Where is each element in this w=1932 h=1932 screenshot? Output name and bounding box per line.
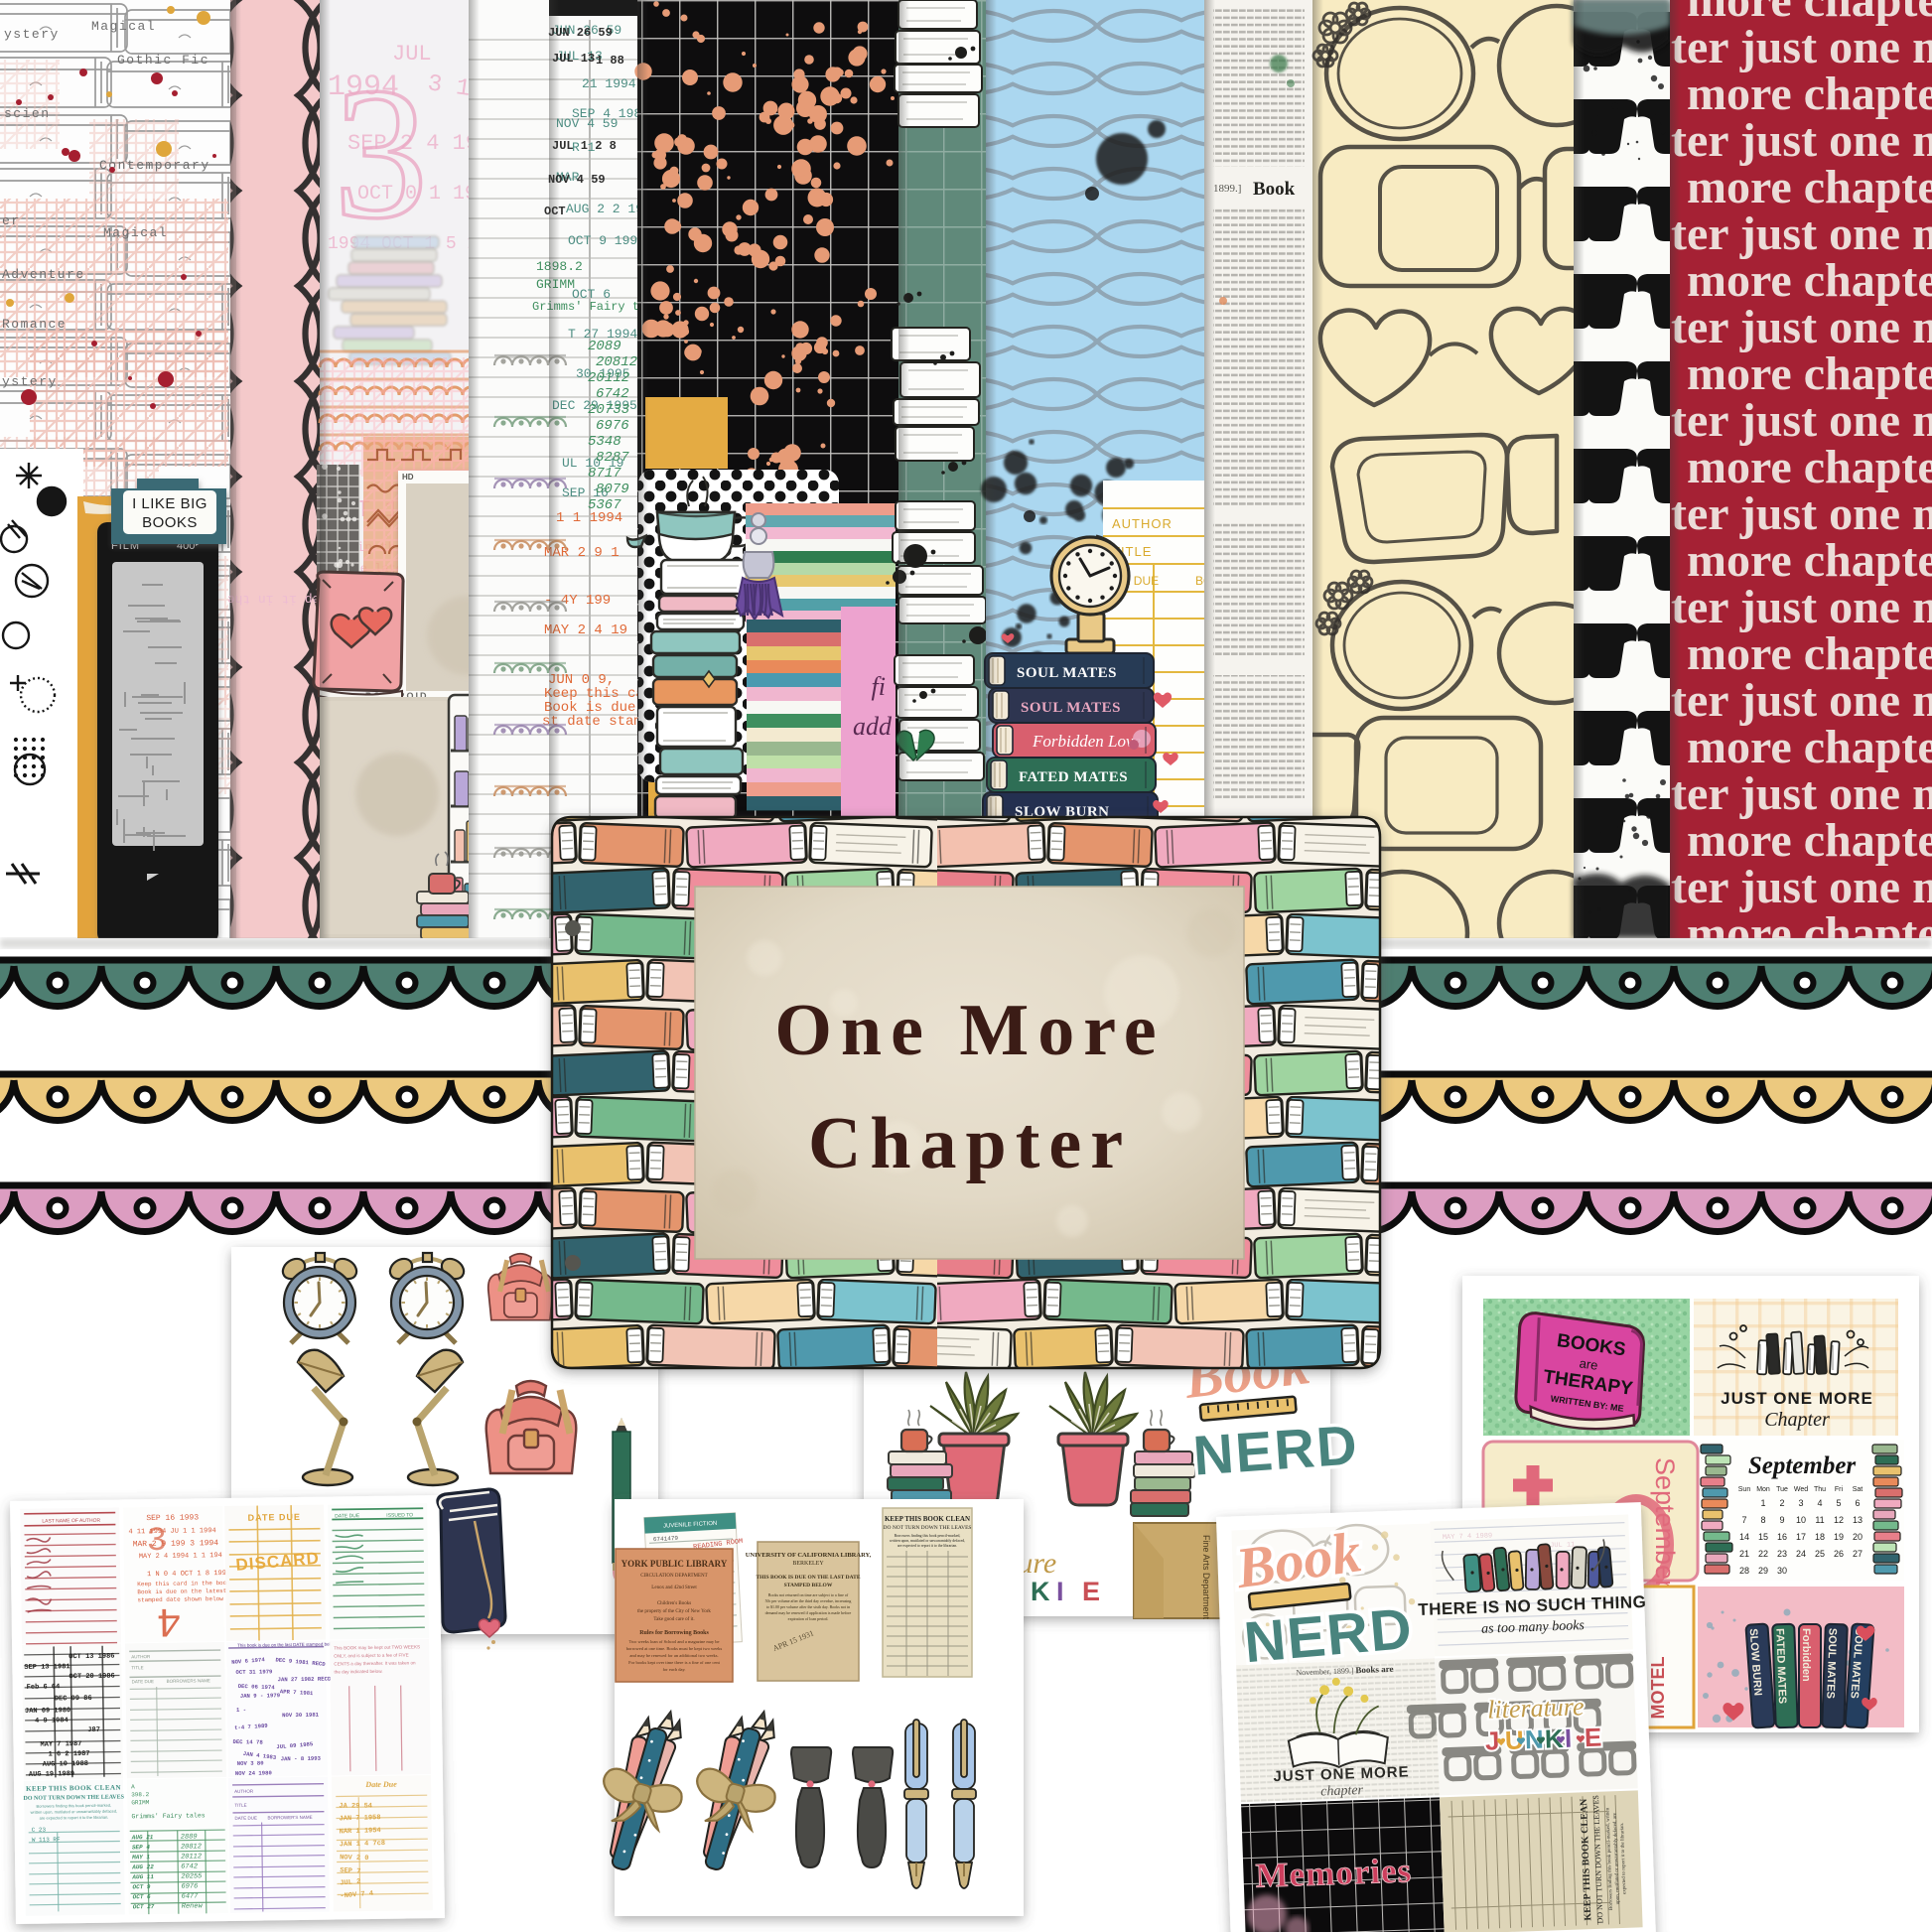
- svg-text:1: 1: [1760, 1498, 1765, 1508]
- svg-text:Forbidden: Forbidden: [1800, 1628, 1812, 1682]
- svg-text:30: 30: [1777, 1566, 1787, 1576]
- svg-text:4 11 1994 JU 1 1 1994: 4 11 1994 JU 1 1 1994: [128, 1527, 215, 1536]
- svg-text:1 1 1994: 1 1 1994: [556, 510, 622, 526]
- svg-text:A: A: [131, 1783, 135, 1790]
- svg-text:5: 5: [1836, 1498, 1841, 1508]
- svg-text:OCT 27: OCT 27: [133, 1903, 155, 1910]
- svg-text:NOV 30 1981: NOV 30 1981: [282, 1712, 320, 1720]
- svg-text:Tue: Tue: [1776, 1486, 1788, 1493]
- svg-text:10: 10: [1796, 1515, 1806, 1525]
- svg-text:8: 8: [1760, 1515, 1765, 1525]
- svg-text:add: add: [853, 712, 893, 741]
- svg-text:6976: 6976: [181, 1882, 198, 1890]
- svg-text:OCT 9: OCT 9: [132, 1883, 150, 1890]
- svg-text:16: 16: [1777, 1532, 1787, 1542]
- svg-text:1899.]: 1899.]: [1213, 183, 1241, 195]
- svg-text:398.2: 398.2: [131, 1791, 149, 1798]
- svg-text:Magical: Magical: [103, 225, 168, 240]
- svg-text:20112: 20112: [181, 1853, 202, 1861]
- svg-text:E: E: [1584, 1723, 1601, 1753]
- svg-text:more chapte: more chapte: [1687, 441, 1932, 493]
- svg-text:OCT 20 1986: OCT 20 1986: [69, 1673, 114, 1682]
- svg-text:MOTEL: MOTEL: [1648, 1657, 1668, 1720]
- svg-text:NOV 4 59: NOV 4 59: [556, 116, 618, 131]
- svg-text:BORROWERS NAME: BORROWERS NAME: [167, 1678, 210, 1684]
- svg-text:5348: 5348: [588, 434, 621, 450]
- svg-text:JAN 27 1982 RECD: JAN 27 1982 RECD: [278, 1676, 332, 1684]
- svg-text:JAN 7 1958: JAN 7 1958: [339, 1814, 380, 1823]
- svg-text:20: 20: [1853, 1532, 1863, 1542]
- svg-text:SEP 4: SEP 4: [132, 1844, 150, 1851]
- svg-text:literature: literature: [1487, 1692, 1585, 1724]
- svg-text:TITLE: TITLE: [131, 1665, 143, 1670]
- svg-text:OCT 9 1990: OCT 9 1990: [568, 233, 645, 248]
- svg-text:NOV 3 80: NOV 3 80: [237, 1759, 265, 1766]
- svg-text:6976: 6976: [596, 418, 629, 434]
- svg-text:6742: 6742: [596, 386, 629, 402]
- svg-text:NOV 2 0: NOV 2 0: [340, 1854, 369, 1863]
- svg-text:and may be renewed for an addi: and may be renewed for an additional two…: [629, 1653, 718, 1658]
- svg-text:more chapte: more chapte: [1687, 347, 1932, 400]
- svg-text:20733: 20733: [588, 402, 629, 418]
- svg-text:I: I: [1056, 1577, 1064, 1606]
- svg-text:chapter: chapter: [1320, 1783, 1364, 1800]
- svg-text:are expected to report it to t: are expected to report it to the librari…: [40, 1815, 109, 1821]
- svg-text:SOUL MATES: SOUL MATES: [1824, 1628, 1838, 1699]
- svg-text:Mon: Mon: [1756, 1486, 1770, 1493]
- svg-text:more chapte: more chapte: [1687, 534, 1932, 587]
- svg-text:6741479: 6741479: [653, 1535, 679, 1543]
- svg-text:27: 27: [1853, 1549, 1863, 1559]
- svg-text:scien: scien: [4, 106, 51, 121]
- svg-text:DATE DUE: DATE DUE: [132, 1679, 154, 1684]
- svg-text:1 -: 1 -: [236, 1707, 246, 1714]
- svg-text:fi: fi: [872, 672, 886, 701]
- svg-text:more chapte: more chapte: [1687, 254, 1932, 307]
- svg-text:NAR 1 1954: NAR 1 1954: [340, 1827, 381, 1836]
- svg-text:29: 29: [1758, 1566, 1768, 1576]
- svg-text:DO NOT TURN DOWN THE LEAVES: DO NOT TURN DOWN THE LEAVES: [884, 1525, 972, 1531]
- svg-text:are expected to report it to t: are expected to report it to the librari…: [897, 1544, 957, 1548]
- svg-text:Chapter: Chapter: [808, 1103, 1132, 1184]
- svg-text:more chapte: more chapte: [1687, 814, 1932, 867]
- svg-text:6: 6: [1855, 1498, 1860, 1508]
- svg-text:1 N 0 4 OCT 1 8 199: 1 N 0 4 OCT 1 8 199: [147, 1570, 226, 1579]
- svg-text:ONLY, and is subject to a fee: ONLY, and is subject to a fee of FIVE: [334, 1652, 408, 1658]
- svg-text:September: September: [1650, 1457, 1680, 1588]
- svg-text:ter just one m: ter just one m: [1671, 207, 1932, 260]
- svg-text:One More: One More: [774, 990, 1165, 1071]
- svg-text:8287: 8287: [596, 450, 629, 466]
- svg-text:UNIVERSITY OF CALIFORNIA LIBRA: UNIVERSITY OF CALIFORNIA LIBRARY,: [746, 1552, 872, 1559]
- svg-text:OCT 13 1986: OCT 13 1986: [69, 1653, 114, 1662]
- svg-text:19: 19: [1834, 1532, 1844, 1542]
- svg-text:Lenox and 42nd Street: Lenox and 42nd Street: [651, 1586, 697, 1590]
- svg-text:JUL 11: JUL 11: [1550, 1541, 1575, 1550]
- svg-text:K: K: [1031, 1577, 1050, 1606]
- svg-text:Feb 6 64: Feb 6 64: [27, 1683, 61, 1691]
- svg-text:SOUL MATES: SOUL MATES: [1017, 665, 1117, 681]
- svg-text:ystery: ystery: [4, 27, 60, 42]
- svg-text:9: 9: [1779, 1515, 1784, 1525]
- svg-text:SEP 7: SEP 7: [340, 1866, 360, 1875]
- svg-text:Book is due on the latest: Book is due on the latest: [137, 1587, 226, 1595]
- svg-text:DATE DUE: DATE DUE: [248, 1512, 301, 1523]
- svg-text:Wed: Wed: [1794, 1486, 1808, 1493]
- svg-text:3: 3: [1798, 1498, 1803, 1508]
- svg-text:YORK PUBLIC LIBRARY: YORK PUBLIC LIBRARY: [621, 1559, 728, 1569]
- svg-text:2089: 2089: [588, 339, 621, 354]
- svg-text:Sat: Sat: [1853, 1486, 1863, 1493]
- svg-text:Borrowers finding this book pe: Borrowers finding this book pencil-marke…: [37, 1803, 112, 1809]
- svg-text:Gothic Fic: Gothic Fic: [117, 53, 209, 68]
- svg-text:LAST NAME OF AUTHOR: LAST NAME OF AUTHOR: [42, 1518, 100, 1525]
- svg-text:I: I: [1564, 1724, 1572, 1753]
- svg-text:AUG 11: AUG 11: [131, 1873, 154, 1880]
- svg-text:25: 25: [1815, 1549, 1825, 1559]
- svg-text:24: 24: [1796, 1549, 1806, 1559]
- svg-text:JAN 09 1980: JAN 09 1980: [25, 1707, 70, 1716]
- svg-text:JAN 9 - 1979: JAN 9 - 1979: [240, 1692, 281, 1700]
- svg-text:For books kept over time there: For books kept over time there is a fine…: [628, 1660, 721, 1665]
- svg-text:C 23: C 23: [32, 1827, 47, 1834]
- svg-text:20812: 20812: [596, 354, 637, 370]
- svg-text:AUTHOR: AUTHOR: [234, 1789, 254, 1794]
- svg-text:FATED MATES: FATED MATES: [1019, 769, 1128, 785]
- svg-text:DATE DUE: DATE DUE: [234, 1816, 256, 1821]
- svg-text:Chapter: Chapter: [1764, 1409, 1830, 1431]
- svg-text:NOV 24 1980: NOV 24 1980: [235, 1769, 273, 1777]
- svg-text:11: 11: [1815, 1515, 1824, 1525]
- svg-text:ter just one m: ter just one m: [1671, 394, 1932, 447]
- svg-text:NERD: NERD: [1191, 1413, 1361, 1486]
- svg-text:22: 22: [1758, 1549, 1768, 1559]
- svg-text:THIS BOOK IS DUE ON THE LAST D: THIS BOOK IS DUE ON THE LAST DATE: [757, 1575, 861, 1581]
- svg-text:more chapte: more chapte: [1687, 627, 1932, 680]
- svg-text:Grimms' Fairy t: Grimms' Fairy t: [532, 300, 639, 314]
- svg-text:ter just one m: ter just one m: [1671, 21, 1932, 73]
- svg-text:Sun: Sun: [1738, 1486, 1751, 1493]
- svg-text:to $1.00 per volume after the: to $1.00 per volume after the sixth day.…: [766, 1604, 850, 1609]
- svg-text:4 9 1984: 4 9 1984: [35, 1717, 69, 1725]
- svg-text:AUG 10 1988: AUG 10 1988: [43, 1760, 88, 1769]
- svg-text:Book: Book: [1253, 179, 1296, 200]
- svg-text:MAY 7 1987: MAY 7 1987: [40, 1740, 81, 1749]
- svg-text:3: 3: [146, 1523, 167, 1561]
- svg-text:Fine Arts Department: Fine Arts Department: [1201, 1535, 1211, 1620]
- svg-text:Memories: Memories: [1255, 1851, 1413, 1894]
- svg-text:E: E: [1082, 1577, 1100, 1606]
- svg-text:Date Due: Date Due: [364, 1780, 397, 1789]
- svg-text:6477: 6477: [182, 1892, 200, 1900]
- svg-text:1 6 2 1987: 1 6 2 1987: [49, 1750, 90, 1759]
- svg-text:20255: 20255: [181, 1872, 203, 1880]
- svg-text:ter just one m: ter just one m: [1671, 861, 1932, 913]
- svg-text:21 1994: 21 1994: [582, 76, 636, 91]
- svg-text:JUL 1 2 8: JUL 1 2 8: [552, 139, 617, 153]
- svg-text:Contemporary: Contemporary: [99, 158, 210, 173]
- svg-text:JAN - 8 1993: JAN - 8 1993: [281, 1755, 322, 1763]
- svg-text:8717: 8717: [588, 466, 621, 482]
- svg-text:DEC 14 78: DEC 14 78: [232, 1738, 263, 1746]
- svg-text:J87: J87: [87, 1726, 100, 1734]
- svg-text:Renew: Renew: [182, 1902, 204, 1910]
- svg-text:12: 12: [1834, 1515, 1844, 1525]
- svg-text:BORROWER'S NAME: BORROWER'S NAME: [267, 1815, 312, 1821]
- svg-text:13: 13: [1853, 1515, 1863, 1525]
- svg-text:JA 29 54: JA 29 54: [339, 1802, 372, 1810]
- svg-text:GRIMM: GRIMM: [131, 1799, 149, 1806]
- svg-text:OCT 31 1979: OCT 31 1979: [235, 1668, 273, 1676]
- svg-text:the day indicated below.: the day indicated below.: [334, 1669, 382, 1675]
- svg-text:26: 26: [1834, 1549, 1844, 1559]
- svg-text:ISSUED TO: ISSUED TO: [386, 1512, 413, 1518]
- svg-text:AUG 19 1989: AUG 19 1989: [29, 1770, 74, 1779]
- svg-text:6742: 6742: [181, 1863, 198, 1870]
- svg-text:2889: 2889: [181, 1833, 198, 1841]
- svg-text:for each day.: for each day.: [662, 1667, 685, 1672]
- svg-text:Adventure: Adventure: [2, 267, 85, 282]
- svg-text:AUG 22: AUG 22: [131, 1863, 154, 1870]
- svg-text:Magical: Magical: [91, 19, 156, 34]
- svg-text:2: 2: [1779, 1498, 1784, 1508]
- svg-text:14: 14: [1739, 1532, 1749, 1542]
- svg-text:more chapte: more chapte: [1687, 161, 1932, 213]
- svg-text:TITLE: TITLE: [234, 1803, 246, 1808]
- svg-text:21: 21: [1739, 1549, 1749, 1559]
- svg-text:4: 4: [156, 1596, 182, 1644]
- svg-text:ystery: ystery: [2, 374, 58, 389]
- svg-text:3: 3: [334, 50, 428, 258]
- svg-text:AUG 21: AUG 21: [131, 1834, 154, 1841]
- svg-text:DATE DUE: DATE DUE: [335, 1513, 360, 1519]
- svg-text:borrowed at one time. Books mu: borrowed at one time. Books must be kept…: [626, 1646, 723, 1651]
- svg-text:ter just one m: ter just one m: [1671, 114, 1932, 167]
- svg-text:JUST ONE MORE: JUST ONE MORE: [1721, 1389, 1873, 1408]
- svg-text:Children's Books: Children's Books: [657, 1601, 691, 1606]
- svg-text:1 88: 1 88: [596, 54, 624, 68]
- svg-text:September: September: [1748, 1452, 1857, 1479]
- svg-text:more chapte: more chapte: [1687, 68, 1932, 120]
- svg-text:Books not returned on time are: Books not returned on time are subject t…: [768, 1592, 849, 1597]
- svg-text:ter just one m: ter just one m: [1671, 674, 1932, 727]
- svg-text:the property of the City of Ne: the property of the City of New York: [637, 1609, 711, 1614]
- svg-text:SEP 13 1981: SEP 13 1981: [24, 1663, 69, 1672]
- svg-text:W 113 RF: W 113 RF: [32, 1836, 61, 1843]
- svg-text:4: 4: [1817, 1498, 1822, 1508]
- svg-text:expiration of loan period.: expiration of loan period.: [788, 1616, 829, 1621]
- svg-text:er: er: [2, 213, 21, 228]
- svg-text:Take good care of it.: Take good care of it.: [653, 1617, 694, 1622]
- svg-text:JAN 1 4 7c8: JAN 1 4 7c8: [340, 1840, 385, 1849]
- svg-text:Grimms' Fairy tales: Grimms' Fairy tales: [131, 1812, 205, 1820]
- svg-text:SOUL MATES: SOUL MATES: [1021, 700, 1121, 716]
- svg-text:ter just one m: ter just one m: [1671, 487, 1932, 540]
- svg-text:KEEP THIS BOOK CLEAN: KEEP THIS BOOK CLEAN: [26, 1784, 121, 1793]
- svg-text:28: 28: [1739, 1566, 1749, 1576]
- svg-text:MAY 1: MAY 1: [131, 1854, 150, 1861]
- svg-text:KEEP THIS BOOK CLEAN: KEEP THIS BOOK CLEAN: [885, 1515, 970, 1523]
- svg-text:Romance: Romance: [2, 317, 67, 332]
- svg-text:AUTHOR: AUTHOR: [1112, 516, 1173, 531]
- svg-text:SEP 16 1993: SEP 16 1993: [146, 1513, 199, 1523]
- svg-text:Forbidden Love: Forbidden Love: [1032, 732, 1142, 751]
- svg-text:18: 18: [1815, 1532, 1825, 1542]
- svg-text:Books are: Books are: [1355, 1664, 1393, 1675]
- svg-text:BERKELEY: BERKELEY: [792, 1561, 824, 1567]
- svg-text:ter just one m: ter just one m: [1671, 767, 1932, 820]
- svg-text:DEC 06 1974: DEC 06 1974: [238, 1683, 276, 1691]
- svg-text:15: 15: [1758, 1532, 1768, 1542]
- svg-text:Rules for Borrowing Books: Rules for Borrowing Books: [639, 1630, 709, 1636]
- svg-text:OCT 6: OCT 6: [133, 1893, 151, 1900]
- svg-text:DEC 09 86: DEC 09 86: [55, 1695, 92, 1704]
- svg-text:MAR 2 9 199 3 1994: MAR 2 9 199 3 1994: [133, 1539, 219, 1549]
- svg-text:are: are: [1579, 1355, 1599, 1372]
- svg-text:Keep this card in the book: Keep this card in the book: [137, 1580, 230, 1587]
- svg-text:23: 23: [1777, 1549, 1787, 1559]
- svg-text:20112: 20112: [588, 370, 629, 386]
- svg-text:CIRCULATION DEPARTMENT: CIRCULATION DEPARTMENT: [640, 1574, 707, 1579]
- svg-text:ter just one m: ter just one m: [1671, 301, 1932, 353]
- svg-text:Fri: Fri: [1835, 1486, 1844, 1493]
- svg-text:HD: HD: [402, 473, 414, 482]
- svg-text:Two weeks loan of School and a: Two weeks loan of School and a magazine …: [628, 1639, 719, 1644]
- svg-text:Thu: Thu: [1814, 1486, 1826, 1493]
- svg-text:I LIKE BIG: I LIKE BIG: [132, 495, 207, 512]
- svg-text:demand may be renewed if appli: demand may be renewed if application is …: [765, 1610, 852, 1615]
- svg-text:20812: 20812: [181, 1843, 202, 1851]
- svg-text:ter just one m: ter just one m: [1671, 581, 1932, 633]
- svg-text:more chapte: more chapte: [1687, 721, 1932, 773]
- svg-text:7: 7: [1741, 1515, 1746, 1525]
- svg-text:8079: 8079: [596, 482, 629, 497]
- svg-text:BOOKS: BOOKS: [142, 514, 198, 531]
- svg-text:AUTHOR: AUTHOR: [131, 1654, 151, 1659]
- svg-text:STAMPED BELOW: STAMPED BELOW: [784, 1583, 833, 1588]
- svg-text:17: 17: [1796, 1532, 1806, 1542]
